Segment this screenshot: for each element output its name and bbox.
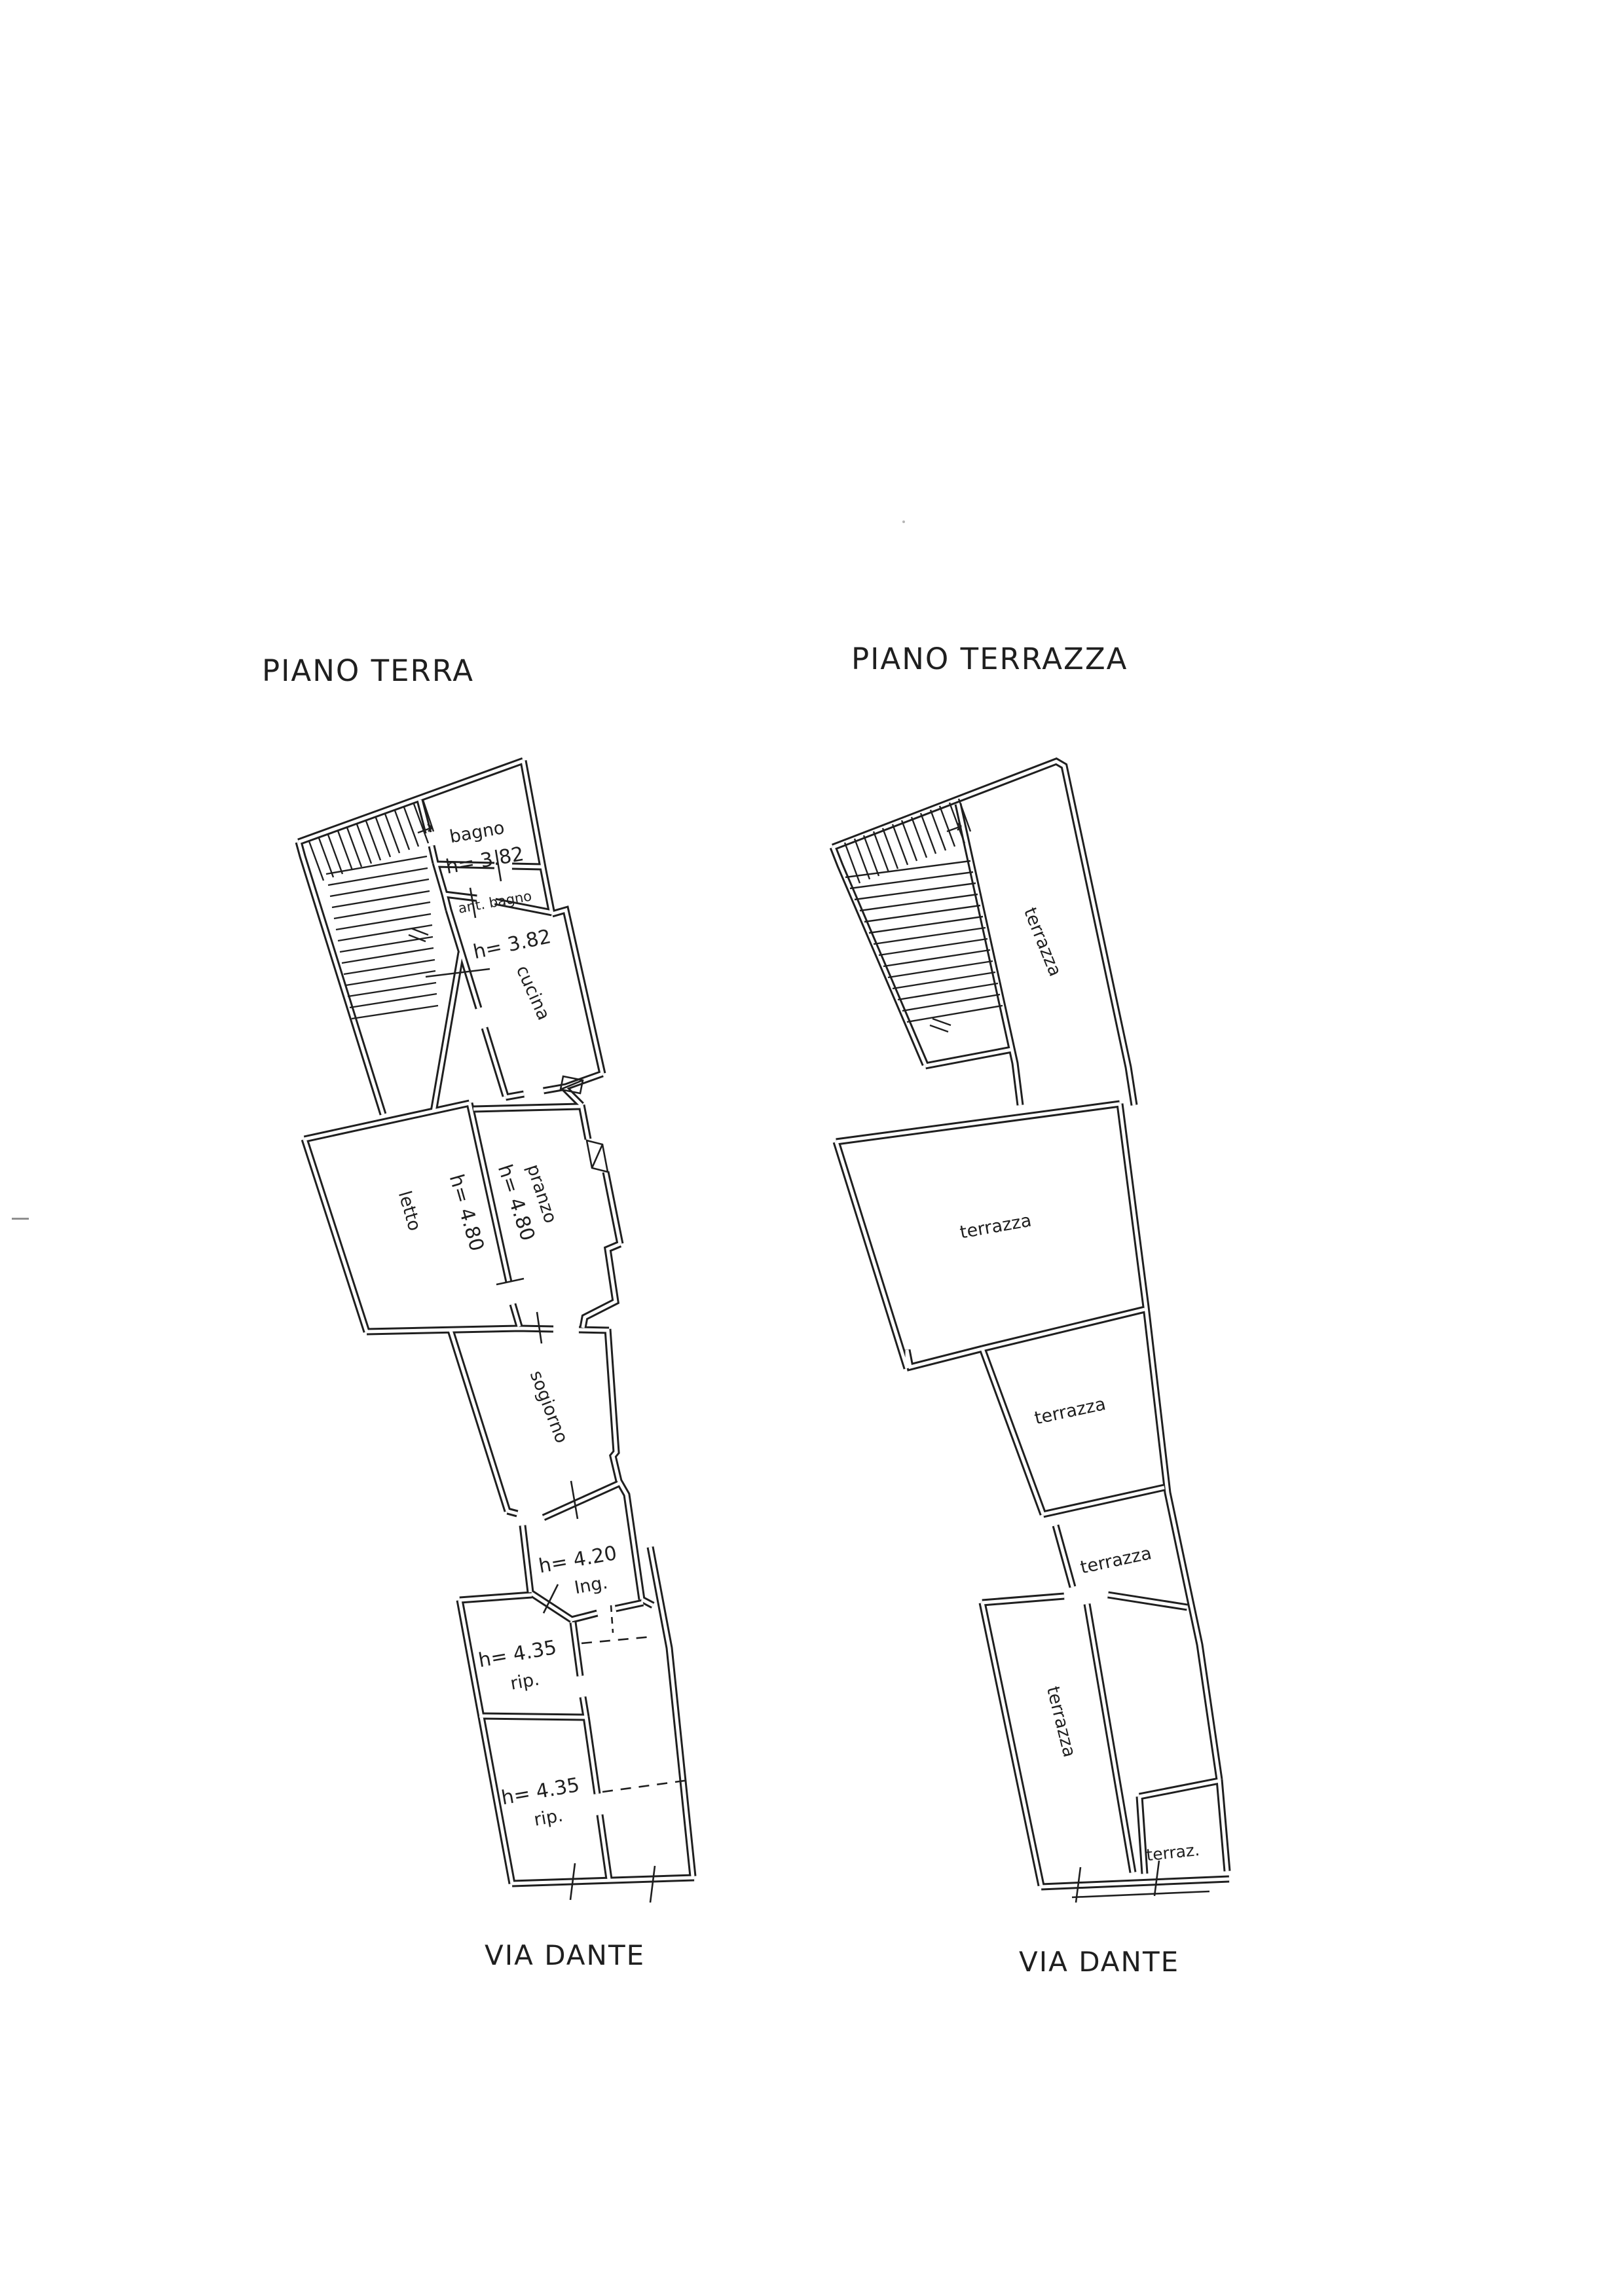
room-label-terrazza-corridor: terrazza [1079,1543,1153,1578]
room-label-ingresso: Ing. [573,1573,609,1598]
room-label-cucina: cucina [512,962,554,1023]
room-label-rip-2: rip. [532,1806,564,1831]
room-label-rip-1: rip. [509,1669,541,1694]
room-label-letto: letto [394,1189,425,1233]
room-label-terrazza-large: terrazza [958,1211,1033,1243]
room-label-terraz-small: terraz. [1145,1840,1200,1865]
scanned-floorplan-sheet: PIANO TERRA PIANO TERRAZZA VIA DANTE VIA… [0,0,1624,2296]
room-label-bagno: bagno [448,818,506,847]
room-label-ant-bagno: ant. bagno [457,888,533,916]
room-label-terrazza-long: terrazza [1043,1685,1080,1760]
height-label-rip-2: h= 4.35 [500,1774,581,1810]
height-label-bagno: h= 3.82 [444,843,526,879]
height-label-ingresso: h= 4.20 [537,1542,619,1578]
height-label-letto: h= 4.80 [445,1172,489,1254]
height-label-rip-1: h= 4.35 [477,1636,559,1672]
piano-terra-walls [299,761,694,1884]
room-label-soggiorno: sogiorno [526,1368,572,1446]
room-label-terrazza-strip: terrazza [1020,905,1065,979]
floorplan-drawing: bagno h= 3.82 ant. bagno h= 3.82 cucina … [0,0,1624,2296]
room-label-terrazza-middle: terrazza [1033,1394,1107,1429]
piano-terrazza-plan: terrazza terrazza terrazza terrazza terr… [833,761,1229,1903]
piano-terra-plan: bagno h= 3.82 ant. bagno h= 3.82 cucina … [299,761,694,1903]
piano-terrazza-edge-lines [1072,1891,1209,1897]
height-label-cucina: h= 3.82 [471,925,553,964]
